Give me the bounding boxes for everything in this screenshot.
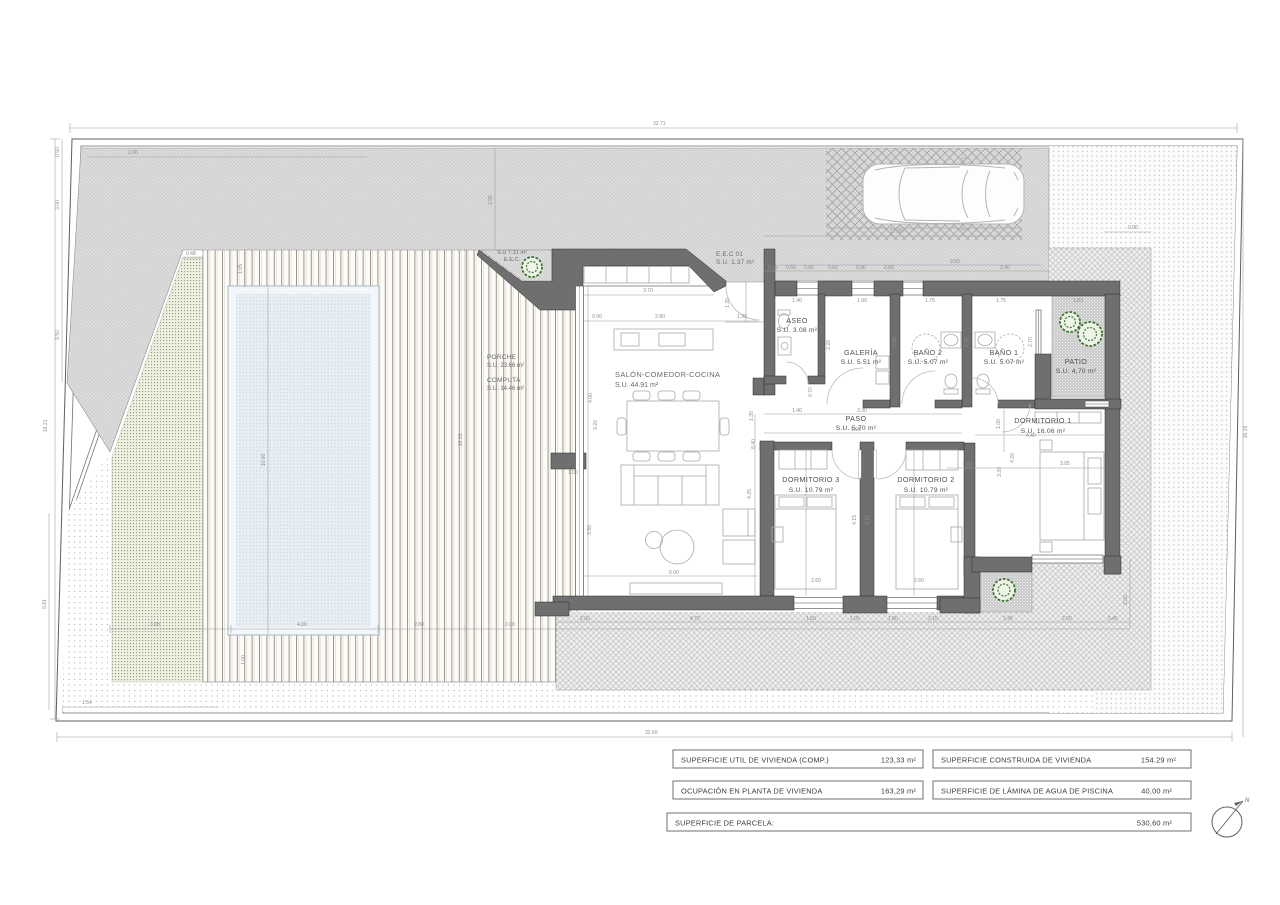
svg-text:S.U. 5.07 m²: S.U. 5.07 m²: [984, 359, 1025, 366]
svg-text:2.60: 2.60: [914, 578, 924, 584]
svg-text:8.40: 8.40: [751, 439, 757, 449]
svg-text:2.60: 2.60: [811, 578, 821, 584]
svg-text:2.10: 2.10: [928, 616, 938, 622]
svg-text:3.20: 3.20: [997, 467, 1003, 477]
svg-text:4.25: 4.25: [747, 489, 753, 499]
svg-text:32.71: 32.71: [653, 121, 666, 127]
svg-text:SALÓN-COMEDOR-COCINA: SALÓN-COMEDOR-COCINA: [615, 370, 720, 379]
svg-text:S.U. 44.91 m²: S.U. 44.91 m²: [615, 382, 659, 389]
svg-text:154.29 m²: 154.29 m²: [1141, 756, 1176, 765]
svg-text:S.U. 16.06 m²: S.U. 16.06 m²: [1021, 428, 1066, 435]
svg-text:2.06: 2.06: [128, 150, 138, 156]
svg-text:PASO: PASO: [845, 414, 866, 423]
svg-text:4.15: 4.15: [865, 515, 871, 525]
svg-text:S.U 7.31 m²: S.U 7.31 m²: [497, 250, 527, 256]
svg-text:S.U. 5.07 m²: S.U. 5.07 m²: [908, 359, 949, 366]
svg-text:1.40: 1.40: [792, 298, 802, 304]
svg-text:S.U. 3.08 m²: S.U. 3.08 m²: [777, 327, 818, 334]
svg-text:1.35: 1.35: [749, 411, 755, 421]
svg-text:123,33 m²: 123,33 m²: [881, 756, 916, 765]
svg-text:3.08: 3.08: [150, 622, 160, 628]
svg-text:0.60: 0.60: [963, 462, 973, 468]
svg-text:0.50: 0.50: [55, 147, 61, 157]
svg-text:N: N: [1245, 798, 1250, 804]
svg-text:2.00: 2.00: [1062, 616, 1072, 622]
svg-text:SUPERFICIE UTIL DE VIVIENDA (: SUPERFICIE UTIL DE VIVIENDA (COMP.): [681, 756, 829, 765]
svg-text:0.90: 0.90: [804, 265, 814, 271]
svg-text:S.U. 1.37 m²: S.U. 1.37 m²: [716, 259, 754, 266]
svg-text:PORCHE: PORCHE: [487, 354, 516, 361]
svg-text:163,29 m²: 163,29 m²: [881, 787, 916, 796]
svg-text:1.54: 1.54: [82, 700, 92, 706]
svg-text:1.90: 1.90: [857, 298, 867, 304]
svg-text:1.20: 1.20: [725, 298, 731, 308]
svg-text:DORMITORIO 3: DORMITORIO 3: [782, 475, 839, 484]
svg-text:S.U. 10.79 m²: S.U. 10.79 m²: [789, 487, 834, 494]
svg-text:32.60: 32.60: [645, 730, 658, 736]
svg-text:2.20: 2.20: [826, 340, 832, 350]
svg-text:1.00: 1.00: [568, 470, 578, 476]
svg-text:S.U. 5.51 m²: S.U. 5.51 m²: [841, 359, 882, 366]
svg-text:1.83: 1.83: [1073, 298, 1083, 304]
svg-text:1.05: 1.05: [850, 616, 860, 622]
svg-text:3.00: 3.00: [55, 200, 61, 210]
svg-text:0.60: 0.60: [786, 265, 796, 271]
svg-text:2.80: 2.80: [655, 314, 665, 320]
svg-text:SUPERFICIE CONSTRUIDA DE VIVIE: SUPERFICIE CONSTRUIDA DE VIVIENDA: [941, 756, 1091, 765]
svg-text:1.45: 1.45: [1003, 616, 1013, 622]
svg-text:6.00: 6.00: [669, 570, 679, 576]
svg-text:0.90: 0.90: [592, 314, 602, 320]
svg-text:E.E.C 01: E.E.C 01: [716, 251, 743, 258]
svg-text:4.00: 4.00: [297, 622, 307, 628]
svg-text:2.00: 2.00: [505, 622, 515, 628]
svg-text:1.75: 1.75: [925, 298, 935, 304]
svg-text:OCUPACIÓN EN PLANTA DE VIVIEND: OCUPACIÓN EN PLANTA DE VIVIENDA: [681, 787, 822, 796]
svg-text:1.50: 1.50: [806, 616, 816, 622]
svg-text:530,60 m²: 530,60 m²: [1137, 819, 1172, 828]
svg-text:DORMITORIO 1: DORMITORIO 1: [1014, 416, 1071, 425]
svg-text:COMPUTA: COMPUTA: [487, 377, 521, 384]
svg-text:2.95: 2.95: [488, 195, 494, 205]
svg-text:DORMITORIO 2: DORMITORIO 2: [897, 475, 954, 484]
svg-text:1.05: 1.05: [238, 264, 244, 274]
svg-text:PATIO: PATIO: [1065, 357, 1088, 366]
svg-text:1.75: 1.75: [996, 298, 1006, 304]
svg-text:BAÑO 1: BAÑO 1: [990, 348, 1019, 357]
svg-text:1.80: 1.80: [888, 616, 898, 622]
svg-text:3.50: 3.50: [587, 525, 593, 535]
svg-text:0.60: 0.60: [828, 265, 838, 271]
svg-text:BAÑO 2: BAÑO 2: [914, 348, 943, 357]
svg-text:17.60: 17.60: [890, 229, 903, 235]
svg-text:GALERÍA: GALERÍA: [844, 348, 878, 357]
svg-text:2.90: 2.90: [892, 337, 898, 347]
svg-text:0.90: 0.90: [856, 265, 866, 271]
svg-text:40,00 m²: 40,00 m²: [1141, 787, 1172, 796]
svg-text:S.U. 10.79 m²: S.U. 10.79 m²: [904, 487, 949, 494]
svg-text:4.70: 4.70: [690, 616, 700, 622]
svg-text:0.90: 0.90: [1128, 225, 1138, 231]
svg-text:E.E.C.: E.E.C.: [504, 257, 521, 263]
svg-text:3.05: 3.05: [1060, 461, 1070, 467]
svg-text:9.55: 9.55: [950, 259, 960, 265]
svg-text:16.19: 16.19: [1243, 426, 1249, 439]
svg-text:9.50: 9.50: [55, 330, 61, 340]
svg-text:4.00: 4.00: [588, 393, 594, 403]
svg-text:SUPERFICIE DE LÁMINA DE AGUA D: SUPERFICIE DE LÁMINA DE AGUA DE PISCINA: [941, 787, 1113, 796]
svg-text:S.U. 5.70 m²: S.U. 5.70 m²: [836, 425, 877, 432]
svg-text:10.00: 10.00: [261, 454, 267, 467]
svg-text:1.00: 1.00: [241, 655, 247, 665]
svg-text:4.20: 4.20: [1010, 453, 1016, 463]
svg-text:ASEO: ASEO: [786, 316, 808, 325]
svg-text:10.15: 10.15: [458, 434, 464, 447]
svg-text:S.U. 23.66 m²: S.U. 23.66 m²: [487, 363, 524, 369]
svg-text:1.40: 1.40: [792, 408, 802, 414]
svg-text:5.81: 5.81: [42, 599, 48, 609]
svg-text:1.30: 1.30: [737, 314, 747, 320]
svg-text:16.21: 16.21: [43, 419, 49, 432]
svg-text:4.15: 4.15: [852, 515, 858, 525]
svg-text:S.U. 14.46 m²: S.U. 14.46 m²: [487, 386, 524, 392]
svg-text:SUPERFICIE DE PARCELA:: SUPERFICIE DE PARCELA:: [675, 819, 774, 828]
svg-text:2.40: 2.40: [1000, 265, 1010, 271]
svg-text:2.00: 2.00: [580, 616, 590, 622]
svg-text:2.70: 2.70: [964, 337, 970, 347]
svg-text:0.60: 0.60: [884, 265, 894, 271]
svg-text:9.20: 9.20: [593, 420, 599, 430]
svg-text:2.00: 2.00: [1123, 595, 1129, 605]
svg-text:0.35: 0.35: [768, 265, 778, 271]
svg-text:3.70: 3.70: [643, 288, 653, 294]
svg-text:2.80: 2.80: [414, 622, 424, 628]
svg-text:2.70: 2.70: [1028, 337, 1034, 347]
svg-text:1.00: 1.00: [996, 419, 1002, 429]
svg-text:0.48: 0.48: [186, 251, 196, 257]
svg-text:0.70: 0.70: [808, 387, 814, 397]
svg-text:0.45: 0.45: [1108, 616, 1118, 622]
svg-text:S.U. 4,70 m²: S.U. 4,70 m²: [1056, 368, 1097, 375]
